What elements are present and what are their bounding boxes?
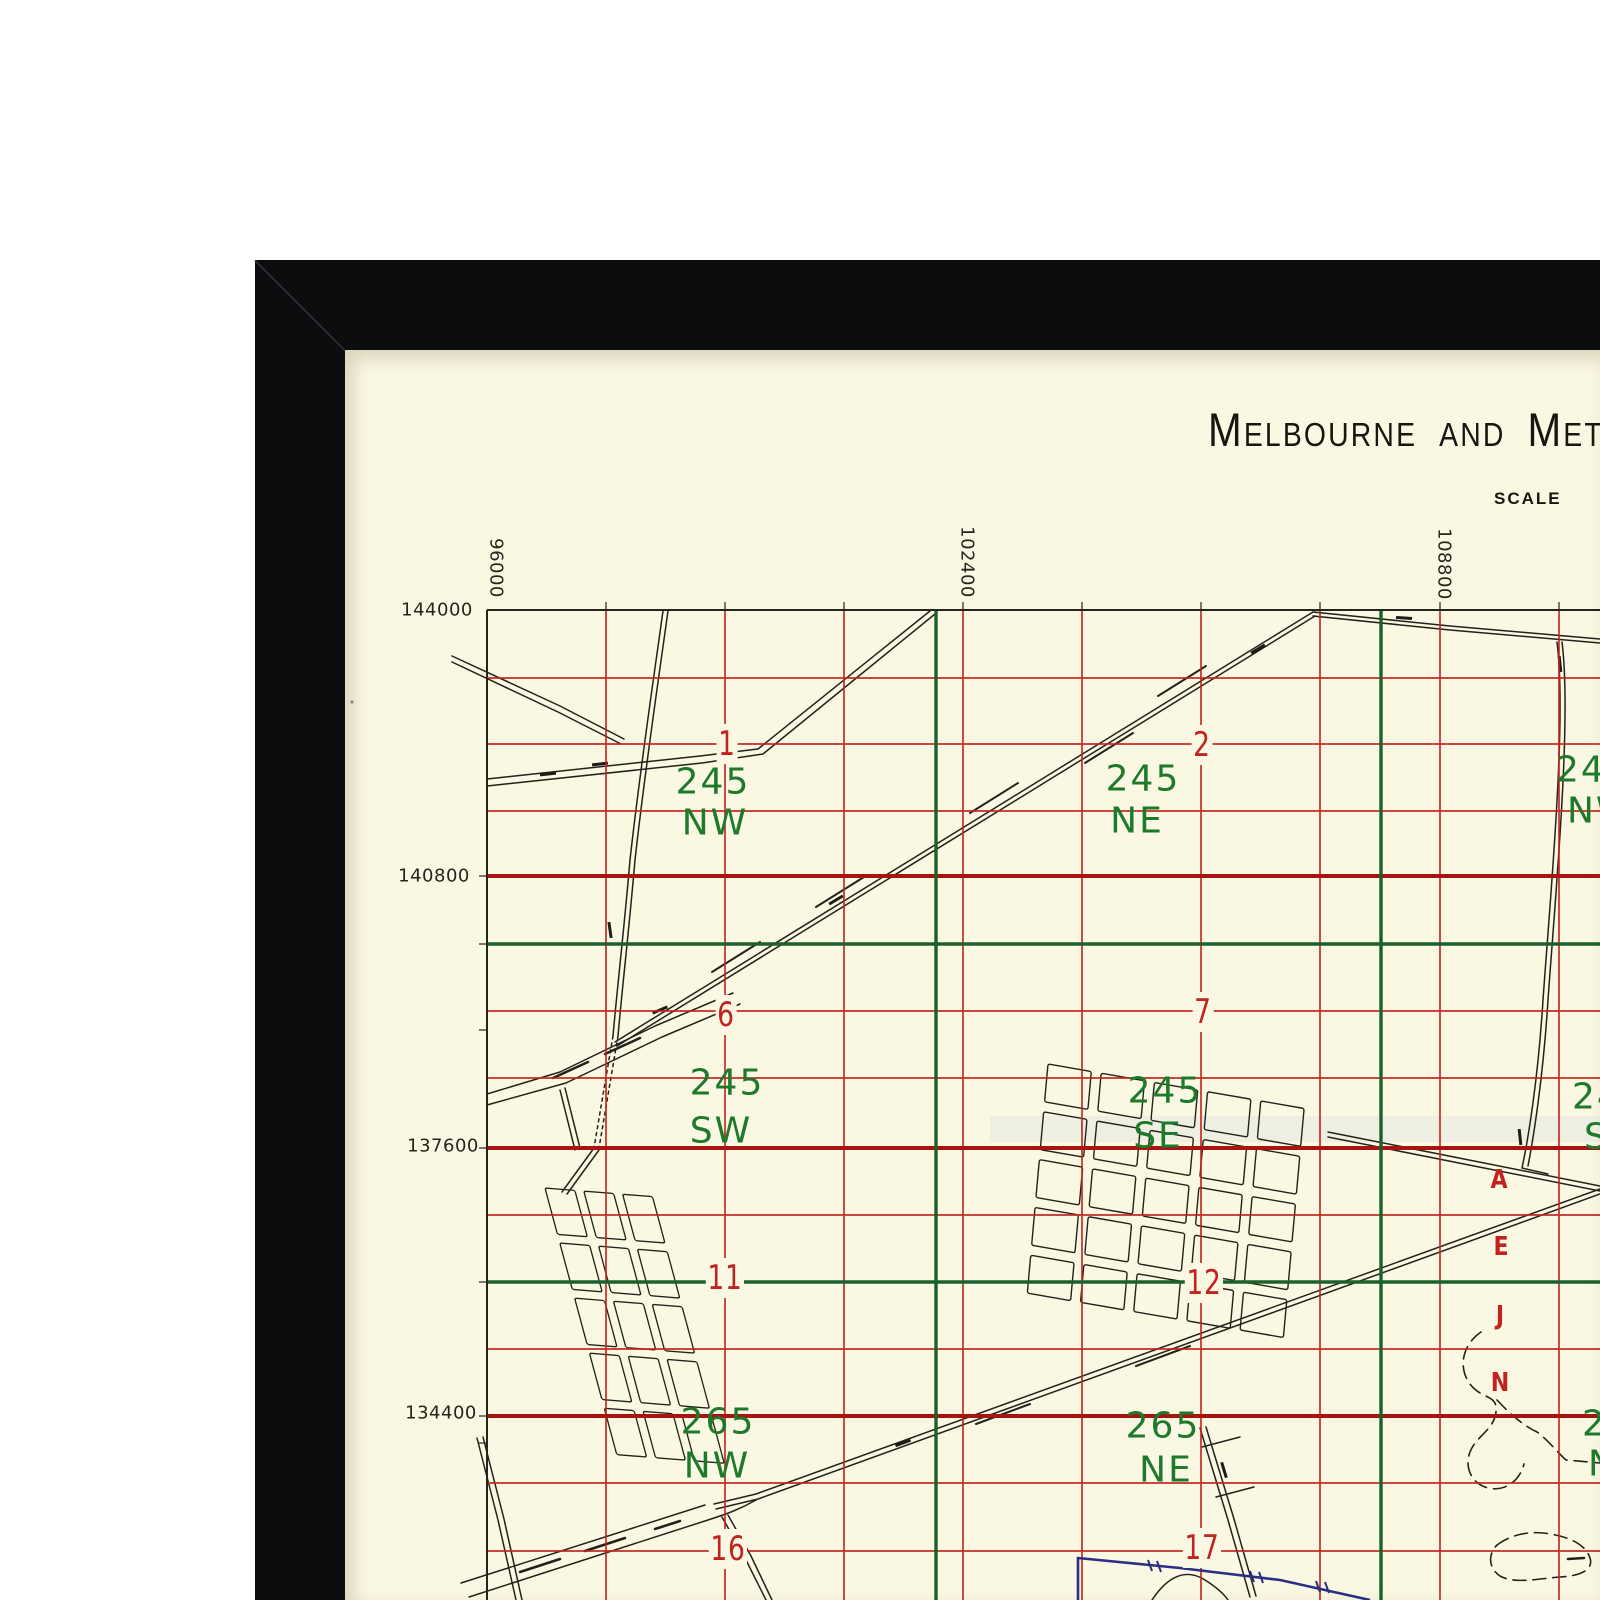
- boundary-navy: [1078, 1558, 1370, 1600]
- cell-number-1: 1: [717, 724, 738, 764]
- sheet-quad-266-nw-fragment: NW: [1588, 1444, 1600, 1485]
- subsheet-letter-a: A: [1490, 1165, 1507, 1195]
- cell-number-11: 11: [706, 1258, 744, 1298]
- map-linework: [0, 0, 1600, 1600]
- sheet-quad-265-nw: NW: [684, 1446, 751, 1487]
- framed-map-photo: { "artwork": { "title": "Melbourne and M…: [0, 0, 1600, 1600]
- sheet-name-265-nw: 265: [681, 1402, 756, 1443]
- subsheet-letter-n: N: [1491, 1368, 1510, 1398]
- easting-label-96000: 96000: [486, 538, 507, 598]
- sheet-quad-245-se: SE: [1133, 1116, 1183, 1157]
- sheet-name-245-nw: 245: [676, 762, 751, 803]
- sheet-quad-245-ne: NE: [1110, 801, 1164, 842]
- creek-lines: [1463, 1332, 1600, 1580]
- sheet-name-265-ne: 265: [1126, 1406, 1201, 1447]
- northing-label-134400: 134400: [405, 1403, 477, 1424]
- grid-red-major: [487, 876, 1600, 1416]
- northing-label-144000: 144000: [401, 600, 473, 621]
- map-title: Melbourne and Metrop: [1208, 402, 1600, 457]
- cell-number-6: 6: [716, 995, 737, 1035]
- cell-number-7: 7: [1193, 992, 1214, 1032]
- roads-black: [452, 611, 1600, 1600]
- northing-label-140800: 140800: [398, 866, 470, 887]
- cell-number-16: 16: [709, 1529, 747, 1569]
- neatline: [479, 602, 1600, 1600]
- sheet-quad-265-ne: NE: [1139, 1450, 1193, 1491]
- sheet-quad-246-sw-fragment: SW: [1584, 1117, 1600, 1158]
- northing-label-137600: 137600: [407, 1136, 479, 1157]
- cell-number-12: 12: [1185, 1263, 1223, 1303]
- easting-label-102400: 102400: [957, 526, 978, 598]
- sheet-name-266-nw-fragment: 266: [1582, 1404, 1600, 1445]
- sheet-quad-245-sw: SW: [690, 1111, 752, 1152]
- subsheet-letter-j: J: [1496, 1301, 1504, 1331]
- scale-label: SCALE: [1494, 489, 1562, 509]
- sheet-name-246-sw-fragment: 246: [1572, 1077, 1600, 1118]
- cell-number-17: 17: [1183, 1528, 1221, 1568]
- sheet-name-245-ne: 245: [1106, 759, 1181, 800]
- sheet-name-246-nw-fragment: 246: [1556, 750, 1600, 791]
- sheet-quad-246-nw-fragment: NW: [1567, 791, 1600, 832]
- easting-label-108800: 108800: [1434, 528, 1455, 600]
- cell-number-2: 2: [1192, 725, 1213, 765]
- sheet-quad-245-nw: NW: [682, 803, 749, 844]
- sheet-name-245-sw: 245: [690, 1063, 765, 1104]
- subsheet-letter-e: E: [1493, 1232, 1508, 1262]
- sheet-name-245-se: 245: [1128, 1071, 1203, 1112]
